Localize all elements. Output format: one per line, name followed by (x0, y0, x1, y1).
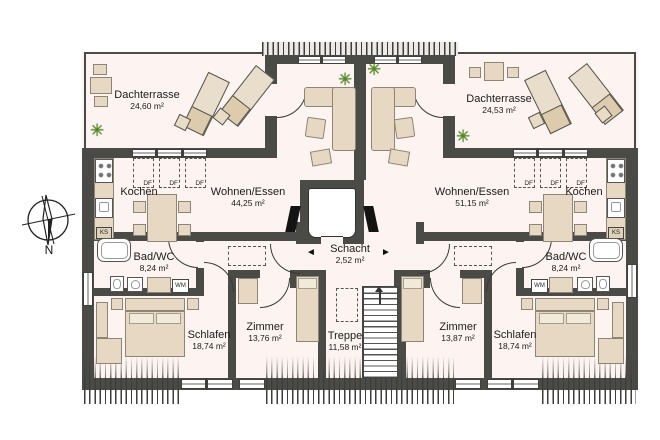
room-label-bath-right: Bad/WC 8,24 m² (546, 251, 587, 273)
room-label-bedroom-left: Schlafen 18,74 m² (188, 329, 231, 351)
window-mullion (511, 378, 514, 390)
window (132, 149, 207, 157)
plant-icon: ✳ (367, 61, 381, 78)
room-area: 2,52 m² (330, 255, 370, 265)
sink-icon (607, 198, 625, 218)
toilet-icon (127, 277, 143, 292)
chair (574, 224, 587, 236)
room-label-bedroom-right: Schlafen 18,74 m² (494, 329, 537, 351)
wardrobe (238, 278, 258, 304)
chair (178, 224, 191, 236)
chair (178, 201, 191, 213)
room-label-room-left: Zimmer 13,76 m² (246, 321, 283, 343)
room-area: 44,25 m² (211, 198, 285, 208)
roof-window-box (228, 246, 266, 266)
roof-window-box: DF (514, 158, 535, 188)
room-name: Schlafen (188, 329, 231, 341)
room-name: Dachterrasse (466, 93, 531, 105)
wall (296, 222, 304, 244)
room-label-terrace-left: Dachterrasse 24,60 m² (114, 89, 179, 111)
elevator-cab (308, 188, 356, 238)
window (513, 149, 588, 157)
room-name: Zimmer (246, 321, 283, 333)
room-name: Schacht (330, 243, 370, 255)
roof-window-tag: DF (195, 180, 204, 187)
chair (133, 201, 146, 213)
roof-window-box: DF (159, 158, 180, 188)
window-mullion (181, 148, 184, 158)
roof-window-box: DF (540, 158, 561, 188)
window (83, 272, 93, 306)
room-label-terrace-right: Dachterrasse 24,53 m² (466, 93, 531, 115)
wardrobe (598, 338, 624, 364)
room-name: Schlafen (494, 329, 537, 341)
window (239, 379, 265, 389)
wardrobe (462, 278, 482, 304)
roof-window-box (336, 288, 358, 322)
room-name: Zimmer (439, 321, 476, 333)
room-name: Wohnen/Essen (435, 186, 509, 198)
side-table (388, 148, 410, 166)
window-mullion (155, 148, 158, 158)
washbasin-icon (110, 276, 124, 292)
room-area: 51,15 m² (435, 198, 509, 208)
floor-plan: DF DF DF DF DF DF ✳ ✳ KS KS ✳ ✳ (0, 0, 660, 440)
roof-edge-hatch-top (262, 42, 458, 56)
bathtub-icon (589, 238, 623, 262)
roof-window-box (454, 246, 492, 266)
nightstand (187, 298, 199, 310)
nightstand (521, 298, 533, 310)
wall (443, 55, 455, 84)
washing-machine-label: WM (534, 283, 545, 289)
wardrobe (96, 302, 108, 338)
chair (133, 224, 146, 236)
bathtub-icon (97, 238, 131, 262)
wardrobe (612, 302, 624, 338)
wall (265, 116, 277, 148)
room-name: Bad/WC (134, 251, 175, 263)
plant-icon: ✳ (456, 128, 470, 145)
stove-icon (95, 159, 113, 183)
stool (507, 67, 519, 78)
room-area: 18,74 m² (494, 341, 537, 351)
washing-machine-tag: WM (531, 279, 548, 293)
room-label-living-left: Wohnen/Essen 44,25 m² (211, 186, 285, 208)
roof-edge-hatch-bottom-center (266, 356, 454, 404)
wall (236, 270, 260, 278)
room-label-room-right: Zimmer 13,87 m² (439, 321, 476, 343)
compass-rose-icon (20, 192, 80, 248)
dining-table (543, 194, 573, 242)
compass-north-label: N (45, 243, 54, 257)
sofa (332, 87, 356, 151)
window-mullion (396, 55, 399, 64)
room-name: Kochen (565, 186, 602, 198)
bed-headboard (535, 298, 595, 311)
washing-machine-tag: WM (172, 279, 189, 293)
nightstand (111, 298, 123, 310)
room-area: 24,53 m² (466, 105, 531, 115)
roof-window-box: DF (133, 158, 154, 188)
window-mullion (205, 378, 208, 390)
wall (416, 222, 424, 244)
window-mullion (536, 148, 539, 158)
entrance-arrow-right-icon: ► (381, 248, 391, 258)
room-label-living-right: Wohnen/Essen 51,15 m² (435, 186, 509, 208)
wall-outer-left (82, 148, 94, 390)
wall (460, 270, 484, 278)
roof-window-box: DF (566, 158, 587, 188)
room-name: Bad/WC (546, 251, 587, 263)
stairs-up-arrow-icon (375, 286, 383, 292)
room-name: Wohnen/Essen (211, 186, 285, 198)
wall (443, 116, 455, 148)
fridge-label: KS (612, 230, 620, 236)
roof-window-tag: DF (169, 180, 178, 187)
washbasin-icon (596, 276, 610, 292)
room-name: Dachterrasse (114, 89, 179, 101)
bed-pillow (539, 313, 564, 324)
window-mullion (562, 148, 565, 158)
bed-pillow (403, 278, 422, 289)
room-label-kitchen-right: Kochen (565, 186, 602, 198)
roof-window-tag: DF (550, 180, 559, 187)
chair (574, 201, 587, 213)
toilet-icon (577, 277, 593, 292)
roof-window-tag: DF (524, 180, 533, 187)
roof-window-box: DF (185, 158, 206, 188)
bed-pillow (129, 313, 154, 324)
sofa (371, 87, 395, 151)
room-label-shaft: Schacht 2,52 m² (330, 243, 370, 265)
room-label-stairs: Treppe 11,58 m² (328, 330, 362, 352)
room-name: Kochen (120, 186, 157, 198)
room-area: 18,74 m² (188, 341, 231, 351)
room-area: 11,58 m² (328, 342, 362, 352)
room-area: 8,24 m² (546, 263, 587, 273)
stool (94, 96, 108, 107)
window-mullion (320, 55, 323, 64)
bed-headboard (125, 298, 185, 311)
stairs-direction-line (379, 292, 381, 304)
bed-pillow (156, 313, 181, 324)
bath-counter (549, 277, 573, 293)
armchair (305, 117, 327, 139)
armchair (394, 117, 416, 139)
chair (529, 201, 542, 213)
fridge-label: KS (100, 230, 108, 236)
room-area: 24,60 m² (114, 101, 179, 111)
washing-machine-label: WM (175, 283, 186, 289)
window (455, 379, 481, 389)
table (484, 62, 504, 81)
plant-icon: ✳ (90, 122, 104, 139)
entrance-arrow-left-icon: ◄ (306, 248, 316, 258)
room-name: Treppe (328, 330, 362, 342)
dining-table (147, 194, 177, 242)
bath-counter (147, 277, 171, 293)
room-area: 13,76 m² (246, 333, 283, 343)
room-area: 13,87 m² (439, 333, 476, 343)
window (627, 264, 637, 298)
bed-pillow (298, 278, 317, 289)
table (90, 77, 112, 94)
nightstand (597, 298, 609, 310)
sink-icon (95, 198, 113, 218)
stool (93, 64, 107, 75)
bed-pillow (566, 313, 591, 324)
chair (529, 224, 542, 236)
stove-icon (607, 159, 625, 183)
stool (469, 67, 481, 78)
room-label-kitchen-left: Kochen (120, 186, 157, 198)
room-label-bath-left: Bad/WC 8,24 m² (134, 251, 175, 273)
wardrobe (96, 338, 122, 364)
room-area: 8,24 m² (134, 263, 175, 273)
plant-icon: ✳ (338, 71, 352, 88)
